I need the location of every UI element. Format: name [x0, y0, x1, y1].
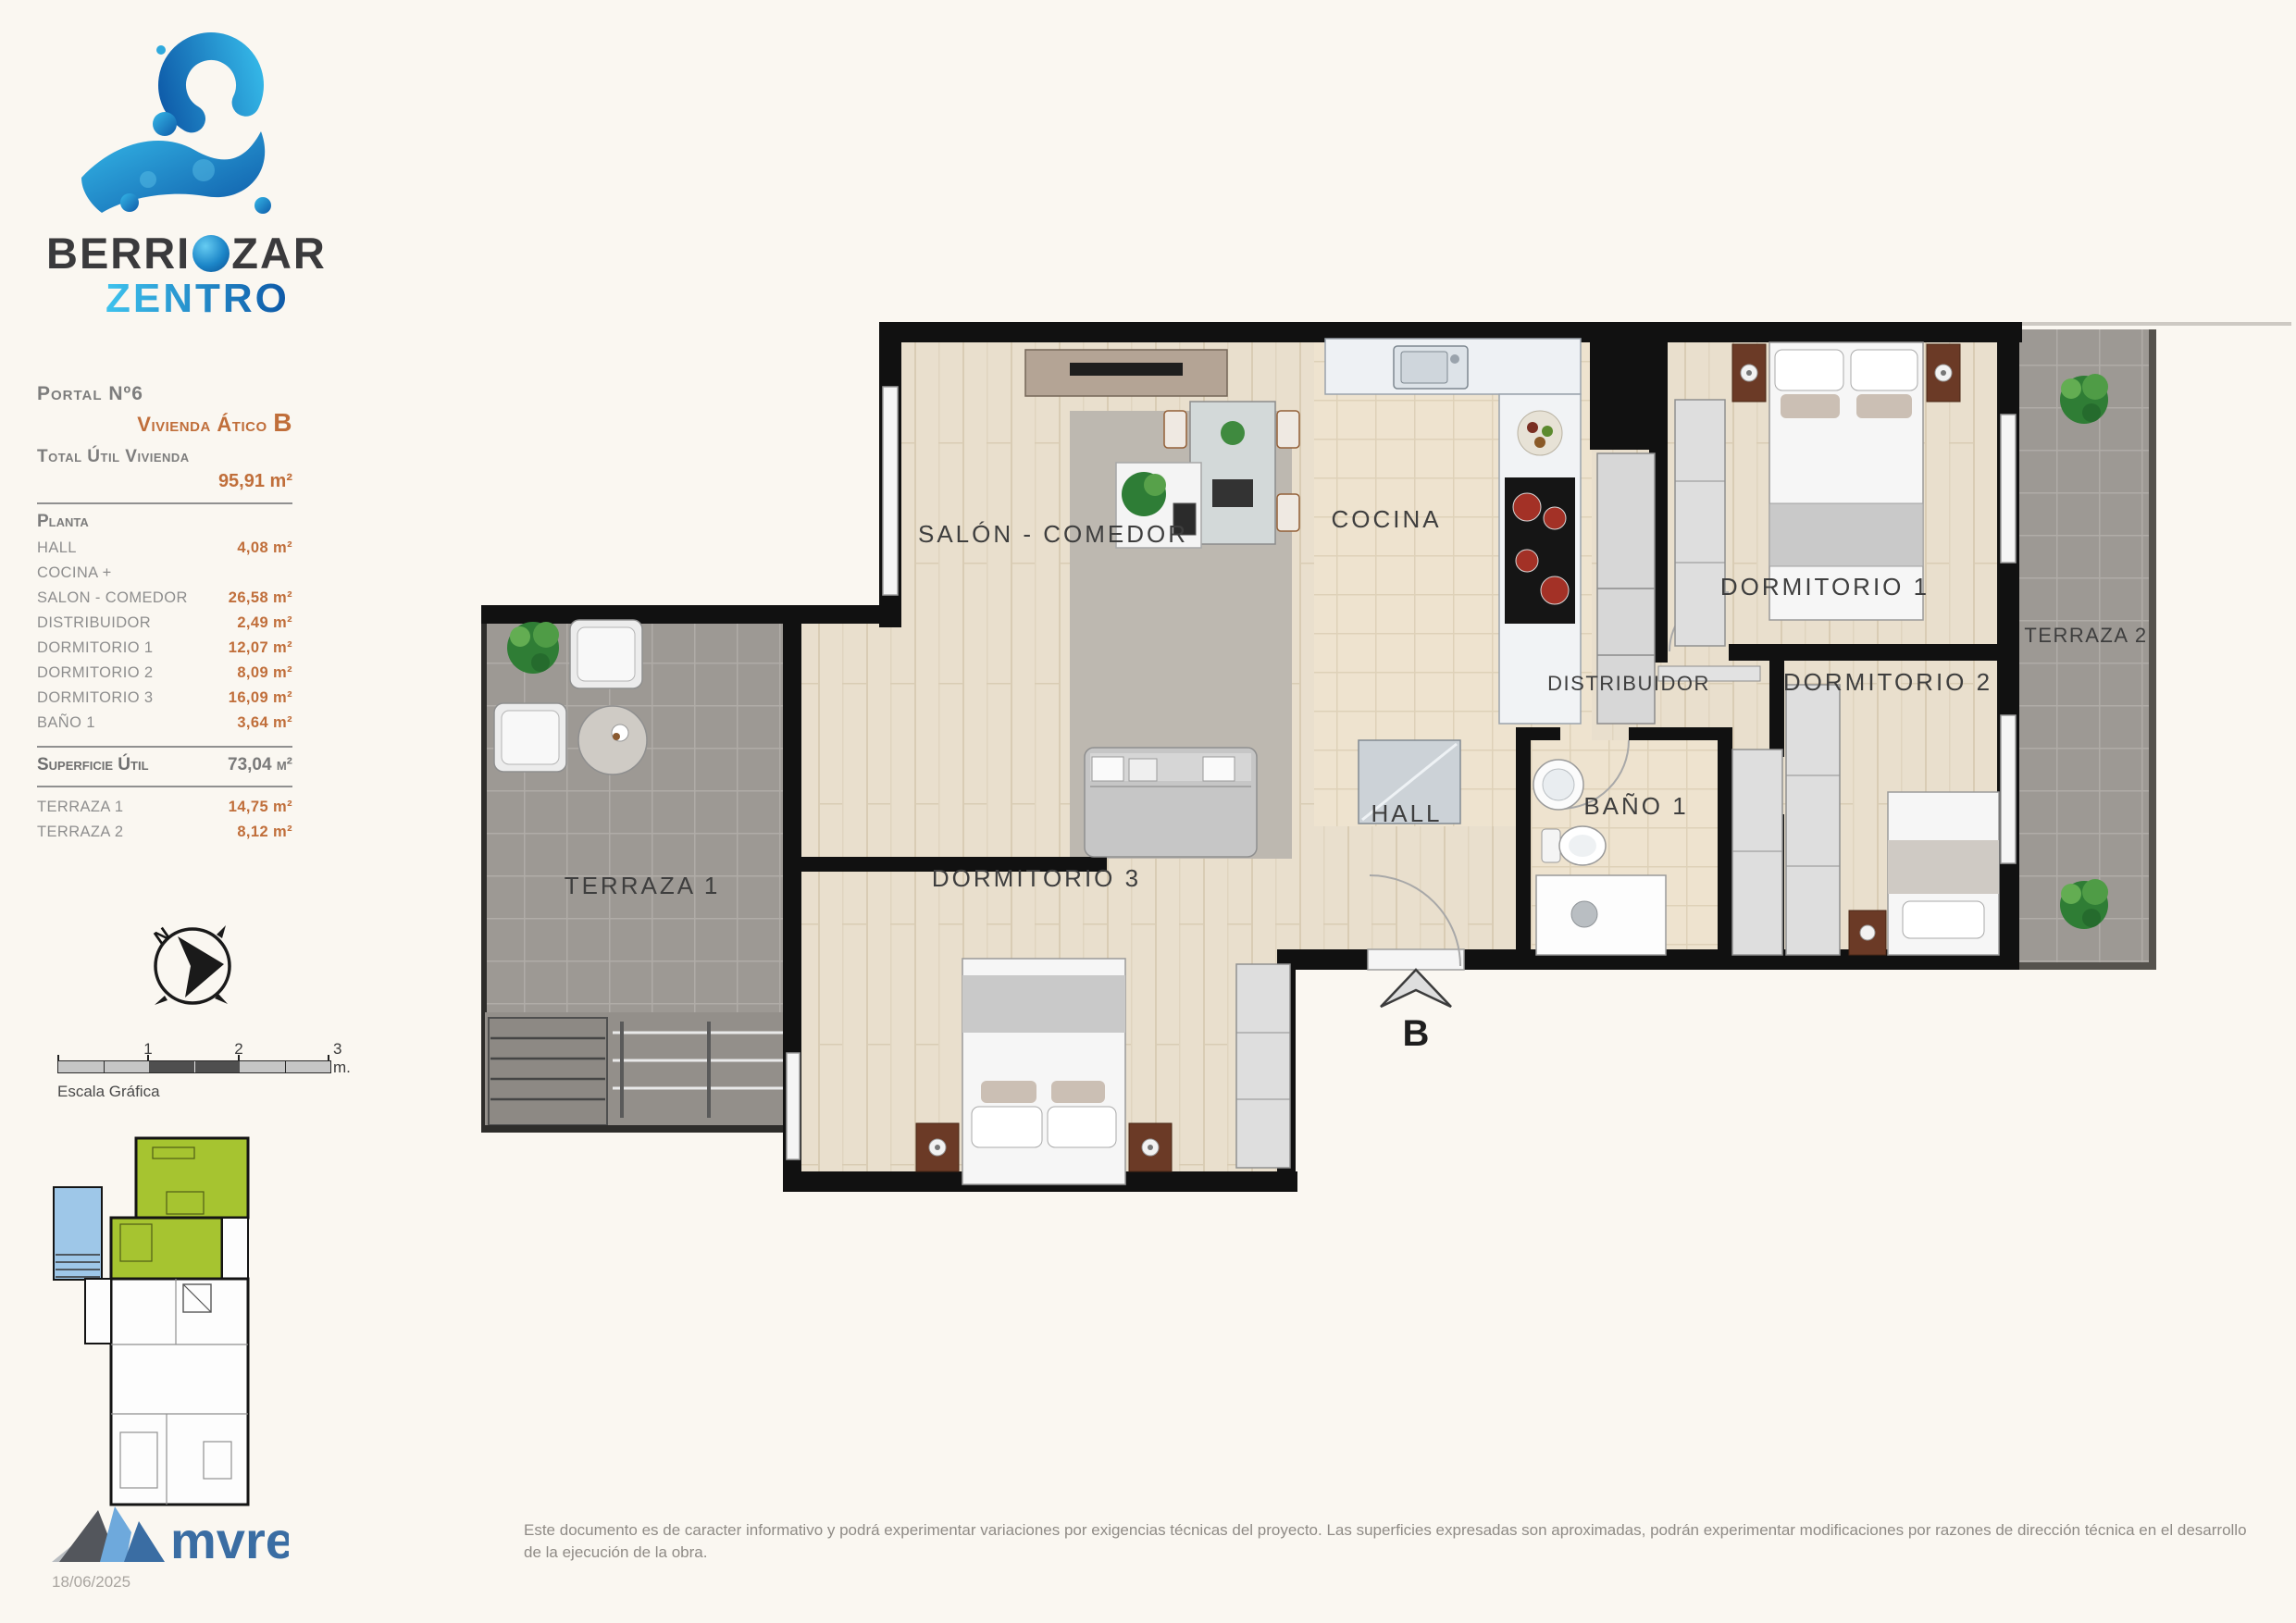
compass-icon: N [135, 909, 246, 1020]
brand-o-sphere-icon [192, 235, 230, 272]
scale-segment [149, 1061, 194, 1072]
brand-name-part2: ZAR [231, 228, 327, 279]
room-label-cocina: COCINA [1331, 505, 1441, 533]
entrance-door-opening [1368, 949, 1464, 970]
room-value: 8,09 m² [237, 661, 292, 686]
room-label: DORMITORIO 1 [37, 636, 154, 661]
room-label-hall: HALL [1371, 799, 1442, 827]
kitchen-counter [1325, 339, 1581, 394]
room-label: DORMITORIO 3 [37, 686, 154, 711]
unit-title: Vivienda Ático B [37, 408, 292, 438]
room-row: BAÑO 13,64 m² [37, 711, 292, 736]
room-label-dormitorio-3: DORMITORIO 3 [932, 864, 1141, 892]
room-value: 26,58 m² [229, 586, 292, 611]
superficie-label: Superficie Útil [37, 755, 149, 775]
room-row: DORMITORIO 316,09 m² [37, 686, 292, 711]
brand-name-part1: BERRI [46, 228, 191, 279]
terrace-value: 14,75 m² [229, 795, 292, 820]
scale-segment [58, 1061, 104, 1072]
mvre-mountain-blue [124, 1521, 165, 1562]
scale-end-label: 3 m. [333, 1040, 351, 1077]
developer-logo: mvre [48, 1505, 289, 1573]
fruit-bowl [1518, 411, 1562, 455]
scale-segment [194, 1061, 241, 1072]
divider [37, 746, 292, 748]
wardrobe-hall [1236, 964, 1290, 1168]
room-value: 4,08 m² [237, 536, 292, 561]
toilet-tank [1542, 829, 1560, 862]
terrace-stairs [489, 1018, 607, 1125]
terraza-2-floor [2017, 329, 2156, 970]
total-util-label: Total Útil Vivienda [37, 447, 292, 467]
overview-annex [85, 1279, 111, 1344]
roofline [2017, 322, 2291, 326]
room-label: SALON - COMEDOR [37, 586, 188, 611]
room-label: HALL [37, 536, 77, 561]
entrance-letter: B [1403, 1013, 1430, 1054]
room-label: DISTRIBUIDOR [37, 611, 151, 636]
total-util-value: 95,91 m² [37, 471, 292, 492]
scale-segment [240, 1061, 285, 1072]
superficie-value: 73,04 m² [228, 755, 292, 775]
entrance-marker: B [1381, 970, 1451, 1054]
sofa [1085, 748, 1257, 857]
document-date: 18/06/2025 [52, 1573, 130, 1592]
entrance-arrow-icon [1381, 970, 1451, 1007]
terrace-table [578, 706, 647, 774]
unit-title-vivienda: Vivienda [137, 413, 211, 436]
graphic-scale-bar: 1 2 3 m. Escala Gráfica [57, 1040, 335, 1114]
room-label-dormitorio-2: DORMITORIO 2 [1783, 668, 1992, 696]
terrace-label: TERRAZA 1 [37, 795, 123, 820]
overview-terrace-blue [54, 1187, 102, 1280]
room-row: SALON - COMEDOR26,58 m² [37, 586, 292, 611]
room-value: 2,49 m² [237, 611, 292, 636]
brand-splash-icon [65, 13, 296, 230]
room-label-dormitorio-1: DORMITORIO 1 [1720, 573, 1930, 601]
room-row: COCINA + [37, 561, 292, 586]
planta-label: Planta [37, 512, 292, 532]
room-value: 16,09 m² [229, 686, 292, 711]
compass-north-label: N [151, 923, 175, 949]
overview-corridor [222, 1218, 248, 1279]
superficie-row: Superficie Útil73,04 m² [37, 755, 292, 775]
overview-other-units [111, 1279, 248, 1505]
scale-caption: Escala Gráfica [57, 1083, 160, 1101]
scale-segment [285, 1061, 331, 1072]
divider [37, 786, 292, 787]
room-row: DORMITORIO 112,07 m² [37, 636, 292, 661]
room-row: HALL4,08 m² [37, 536, 292, 561]
room-label-terraza-2: TERRAZA 2 [2024, 624, 2147, 647]
brand-name-line2: ZENTRO [105, 276, 290, 322]
room-row: DISTRIBUIDOR2,49 m² [37, 611, 292, 636]
room-label-bano: BAÑO 1 [1583, 792, 1688, 820]
tv-sideboard [1025, 350, 1227, 396]
wardrobe-dormitorio-2 [1786, 685, 1840, 955]
unit-title-letter: B [273, 408, 292, 437]
terrace-row: TERRAZA 114,75 m² [37, 795, 292, 820]
room-label: COCINA + [37, 561, 112, 586]
wardrobe-dormitorio-1 [1675, 400, 1725, 646]
room-value: 12,07 m² [229, 636, 292, 661]
scale-bar-segments [57, 1060, 331, 1073]
unit-title-type: Ático [217, 413, 267, 436]
scale-segment [104, 1061, 150, 1072]
room-label-distribuidor: DISTRIBUIDOR [1547, 672, 1710, 695]
portal-label: Portal Nº6 [37, 383, 292, 405]
divider [37, 502, 292, 504]
shower-tray [1536, 875, 1666, 955]
legal-disclaimer: Este documento es de caracter informativ… [524, 1519, 2264, 1564]
brand-name-line1: BERRIZAR [46, 228, 327, 279]
room-label-terraza-1: TERRAZA 1 [565, 872, 721, 899]
terrace-label: TERRAZA 2 [37, 820, 123, 845]
wardrobe-bath-side [1732, 750, 1782, 955]
unit-spec-panel: Portal Nº6 Vivienda Ático B Total Útil V… [37, 383, 292, 845]
apartment-floor-plan: B SALÓN - COMEDOR COCINA DORMITORIO 1 TE… [481, 322, 2295, 1194]
building-overview-plan [28, 1136, 250, 1514]
highlighted-unit-lower [111, 1218, 222, 1279]
compass-arrow [178, 936, 224, 997]
room-label-salon: SALÓN - COMEDOR [918, 520, 1188, 548]
mvre-logo-text: mvre [170, 1511, 289, 1569]
room-label: DORMITORIO 2 [37, 661, 154, 686]
terrace-row: TERRAZA 28,12 m² [37, 820, 292, 845]
room-value: 3,64 m² [237, 711, 292, 736]
terrace-value: 8,12 m² [237, 820, 292, 845]
room-row: DORMITORIO 28,09 m² [37, 661, 292, 686]
room-label: BAÑO 1 [37, 711, 95, 736]
